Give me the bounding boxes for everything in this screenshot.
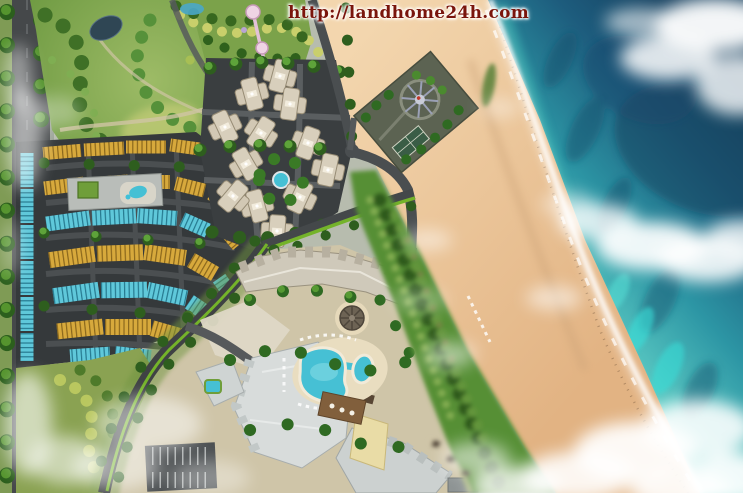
- mist: [94, 396, 202, 452]
- condo-pool: [273, 172, 289, 188]
- master-plan-image: http://landhome24h.com: [0, 0, 743, 493]
- townhouse-block-blue: [21, 333, 34, 361]
- townhouse-block-blue: [101, 282, 147, 299]
- mist: [420, 349, 472, 371]
- mist: [72, 446, 160, 490]
- cloud: [480, 99, 520, 117]
- mist: [4, 44, 32, 112]
- kids-pool: [126, 195, 131, 200]
- mist: [392, 288, 448, 312]
- watermark-url: http://landhome24h.com: [288, 3, 529, 23]
- townhouse-block-yellow: [126, 141, 166, 154]
- townhouse-block-yellow: [97, 244, 144, 262]
- cloud: [404, 230, 452, 250]
- townhouse-block-blue: [21, 261, 34, 295]
- cloud: [542, 192, 594, 216]
- attraction-dot: [241, 27, 247, 33]
- clubhouse: [67, 174, 163, 211]
- bar-roof-cap: [349, 315, 355, 321]
- cloud: [526, 286, 582, 310]
- townhouse-block-blue: [92, 208, 137, 225]
- mist: [2, 220, 22, 276]
- cabana: [350, 411, 355, 416]
- cabana: [340, 408, 345, 413]
- water-feature: [180, 3, 204, 15]
- townhouse-block-blue: [21, 297, 34, 331]
- townhouse-block-blue: [137, 208, 178, 226]
- townhouse-block-yellow: [84, 141, 125, 156]
- townhouse-block-yellow: [105, 319, 151, 335]
- cabana: [330, 404, 335, 409]
- townhouse-block-blue: [21, 225, 34, 259]
- courtyard-pool: [205, 380, 221, 393]
- clubhouse-building: [78, 182, 98, 198]
- cloud: [605, 8, 675, 36]
- townhouse-block-blue: [21, 189, 34, 223]
- master-plan-rendering: [0, 0, 743, 493]
- mist: [29, 96, 81, 128]
- plaza-node: [246, 5, 260, 19]
- plaza-node: [256, 42, 268, 54]
- plot-connector-road: [350, 118, 354, 150]
- pool-bar: [335, 301, 369, 335]
- cloud: [442, 442, 510, 474]
